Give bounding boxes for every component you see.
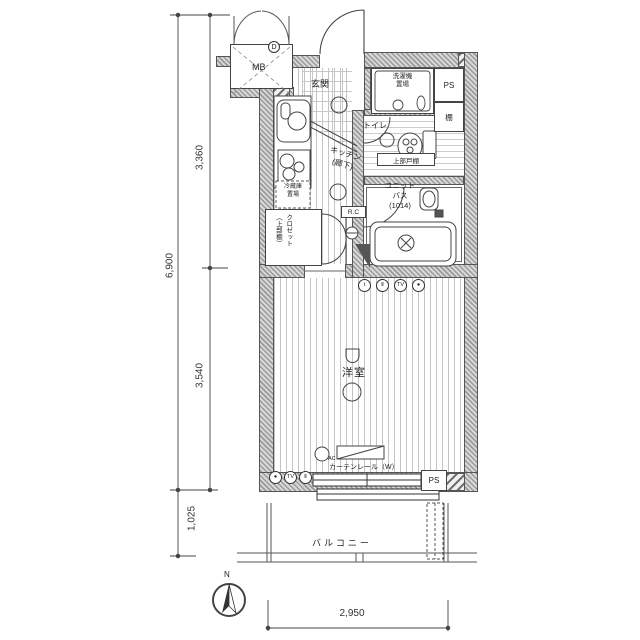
outlet-icon-room-1: ●: [269, 471, 282, 484]
dim-total: 6,900: [165, 246, 176, 286]
dim-upper: 3,360: [195, 138, 206, 178]
outlet-icon-bath-4: ●: [412, 279, 425, 292]
upper-cabinet-box: 上部戸棚: [377, 153, 435, 166]
wall-mid-left: [259, 264, 305, 278]
ac-label: AC: [328, 456, 336, 462]
ps-bottom-box: PS: [421, 470, 447, 491]
fridge-label: 冷蔵庫 置場: [276, 184, 310, 200]
dim-lower: 3,540: [195, 356, 206, 396]
mb-doors: [234, 11, 289, 44]
closet-label-line1: クロゼット: [282, 214, 292, 264]
wall-top-left: [291, 55, 320, 68]
wall-genkan-washer: [364, 68, 371, 110]
washer-label-line1: 洗濯機: [371, 73, 434, 81]
mb-label: MB: [252, 62, 266, 72]
entrance-door: [320, 10, 364, 54]
bath-label-line3: (1014): [372, 201, 428, 211]
shelf-box: 棚: [434, 102, 464, 132]
wall-bottom-right-corner: [446, 473, 465, 491]
outlet-icon-bath-2: Ⅱ: [376, 279, 389, 292]
washer-label-line2: 置場: [371, 81, 434, 89]
curtain-rail-label: カーテンレール（W）: [329, 462, 399, 472]
closet-label: クロゼット （上部棚）: [272, 214, 293, 264]
balcony-lines: [237, 503, 477, 562]
outlet-icon-room-2: TV: [284, 471, 297, 484]
bath-label: ユニット バス (1014): [372, 181, 428, 211]
outlet-icon-bath-3: TV: [394, 279, 407, 292]
fridge-label-line1: 冷蔵庫: [276, 184, 310, 192]
wall-bath-bottom: [345, 264, 478, 278]
genkan-label: 玄関: [311, 77, 329, 90]
d-mark: D: [268, 41, 280, 53]
rc-box: R.C: [341, 206, 366, 218]
ps-top-box: PS: [434, 68, 464, 102]
closet-label-line2: （上部棚）: [272, 214, 282, 264]
floor-plan: MB D 玄関 洗濯機 置場 PS 棚 トイレ 上部戸棚 ユニット バス (10…: [0, 0, 640, 640]
compass-icon: [213, 584, 245, 616]
toilet-label: トイレ: [363, 120, 387, 131]
dim-width: 2,950: [322, 608, 382, 619]
bath-label-line2: バス: [372, 191, 428, 201]
north-label: N: [224, 570, 230, 579]
fridge-label-line2: 置場: [276, 192, 310, 200]
outlet-icon-bath-1: t: [358, 279, 371, 292]
balcony-label: バルコニー: [312, 536, 372, 549]
washer-label: 洗濯機 置場: [371, 73, 434, 89]
room-label: 洋室: [342, 364, 366, 380]
wall-left: [259, 87, 274, 492]
outlet-icon-room-3: Ⅱ: [299, 471, 312, 484]
bath-label-line1: ユニット: [372, 181, 428, 191]
wall-bath-left: [352, 110, 364, 278]
dim-balcony: 1,025: [187, 499, 198, 539]
room-flooring: [274, 278, 464, 472]
